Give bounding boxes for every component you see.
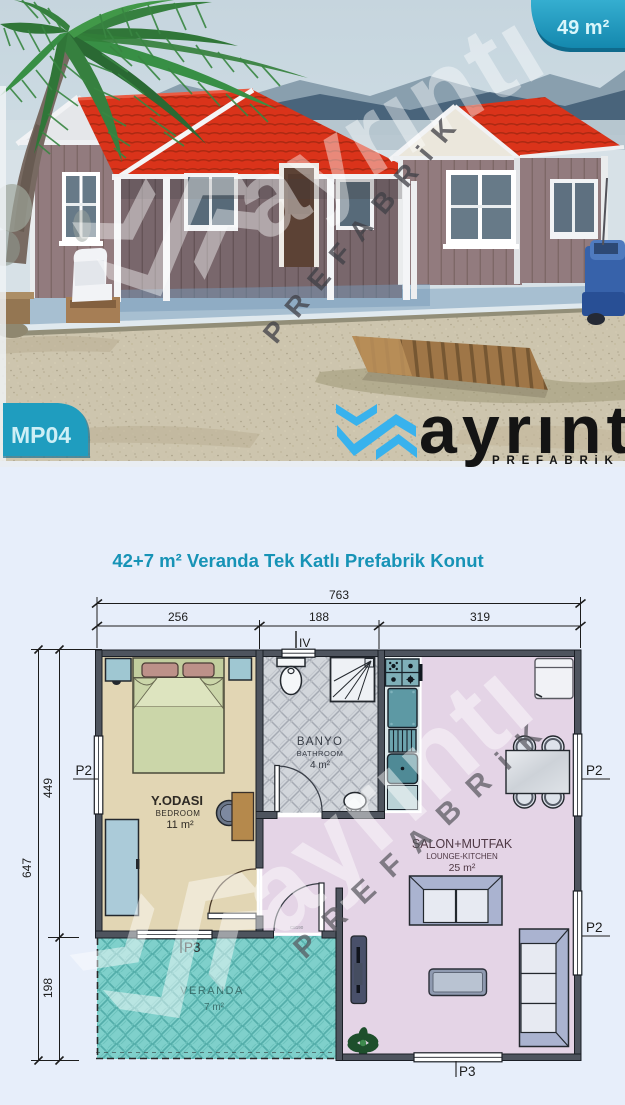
svg-text:IV: IV — [299, 636, 310, 650]
svg-text:319: 319 — [470, 610, 490, 624]
svg-text:49 m²: 49 m² — [557, 17, 610, 39]
svg-text:BANYO: BANYO — [297, 736, 343, 748]
svg-text:BATHROOM: BATHROOM — [297, 749, 344, 758]
svg-text:256: 256 — [168, 610, 188, 624]
svg-text:VERANDA: VERANDA — [180, 985, 244, 997]
svg-text:MP04: MP04 — [11, 422, 71, 448]
svg-text:P2: P2 — [75, 763, 92, 778]
svg-text:LOUNGE-KITCHEN: LOUNGE-KITCHEN — [426, 852, 498, 861]
svg-text:647: 647 — [20, 858, 34, 878]
svg-text:763: 763 — [329, 588, 349, 602]
svg-text:25 m²: 25 m² — [449, 862, 476, 874]
svg-text:P2: P2 — [586, 920, 603, 935]
svg-text:7 m²: 7 m² — [204, 1002, 225, 1013]
svg-text:42+7 m² Veranda Tek Katlı Pref: 42+7 m² Veranda Tek Katlı Prefabrik Konu… — [112, 550, 483, 571]
svg-text:P3: P3 — [459, 1064, 476, 1079]
svg-text:188: 188 — [309, 610, 329, 624]
svg-text:198: 198 — [41, 978, 55, 998]
svg-text:BEDROOM: BEDROOM — [156, 809, 201, 818]
svg-text:P2: P2 — [586, 763, 603, 778]
svg-text:PREFABRiK: PREFABRiK — [492, 455, 620, 467]
svg-text:11 m²: 11 m² — [166, 819, 194, 831]
svg-text:Y.ODASI: Y.ODASI — [151, 793, 203, 808]
svg-text:449: 449 — [41, 778, 55, 798]
